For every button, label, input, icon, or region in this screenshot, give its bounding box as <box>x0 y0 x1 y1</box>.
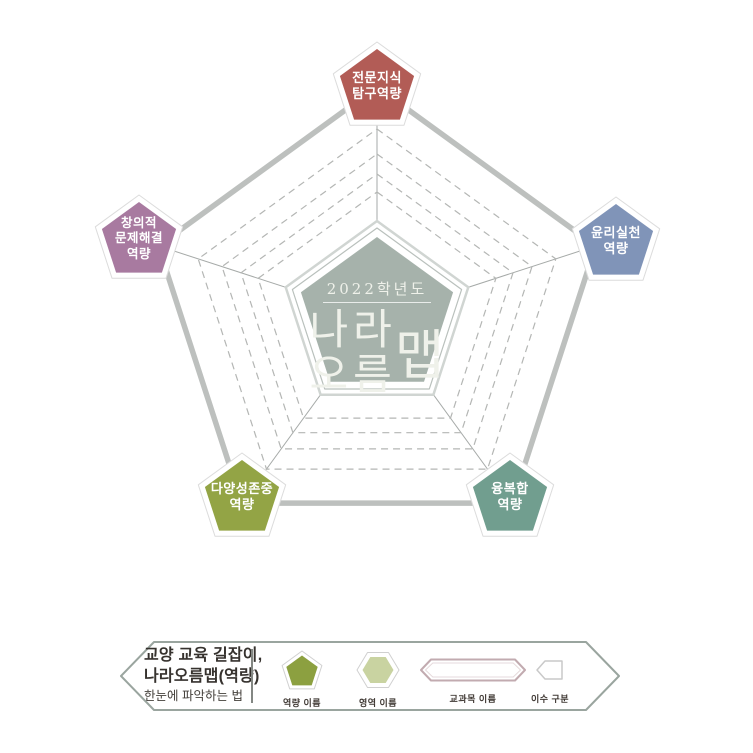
legend-item-label: 역량 이름 <box>283 696 321 709</box>
legend-item-competency: 역량 이름 <box>270 650 334 709</box>
legend-title-line3: 한눈에 파악하는 법 <box>144 687 262 705</box>
classification-tag-icon <box>535 659 565 681</box>
competency-label-line: 문제해결 <box>115 231 163 247</box>
hexagon-icon <box>355 650 401 690</box>
map-name-line1: 나라 <box>310 307 397 352</box>
competency-badge-top: 전문지식 탐구역량 <box>329 38 425 138</box>
competency-badge-right: 윤리실천 역량 <box>568 193 664 293</box>
legend-item-label: 교과목 이름 <box>450 692 497 705</box>
competency-badge-bottom-right: 융복합 역량 <box>462 449 558 549</box>
map-name-stacked: 나라 오름 <box>310 307 397 397</box>
legend-box: 교양 교육 길잡이, 나라오름맵(역량) 한눈에 파악하는 법 역량 이름 영역… <box>118 638 622 714</box>
legend-title-line2: 나라오름맵(역량) <box>144 666 262 687</box>
competency-label-line: 탐구역량 <box>352 86 402 102</box>
competency-label: 창의적 문제해결 역량 <box>91 189 187 289</box>
competency-label: 전문지식 탐구역량 <box>329 36 425 136</box>
legend-item-classification: 이수 구분 <box>518 650 582 705</box>
map-title: 2022학년도 나라 오름 맵 <box>297 278 457 397</box>
legend-item-label: 영역 이름 <box>359 696 397 709</box>
competency-label: 윤리실천 역량 <box>568 191 664 291</box>
legend-item-course: 교과목 이름 <box>413 650 533 705</box>
map-name-suffix: 맵 <box>395 329 445 383</box>
map-name: 나라 오름 맵 <box>297 307 457 397</box>
legend-divider <box>251 649 253 703</box>
competency-label-line: 창의적 <box>121 216 157 232</box>
course-pill-icon <box>418 657 528 683</box>
pentagon-icon <box>280 650 324 690</box>
competency-label-line: 역량 <box>127 247 151 263</box>
legend-item-label: 이수 구분 <box>531 692 569 705</box>
competency-label-line: 역량 <box>604 241 629 257</box>
legend-title-line1: 교양 교육 길잡이, <box>144 645 262 666</box>
competency-label: 다양성존중 역량 <box>194 447 290 547</box>
competency-label-line: 융복합 <box>491 481 528 497</box>
competency-badge-bottom-left: 다양성존중 역량 <box>194 449 290 549</box>
competency-label-line: 역량 <box>230 497 255 513</box>
competency-label-line: 다양성존중 <box>211 481 273 497</box>
competency-label-line: 전문지식 <box>352 70 402 86</box>
competency-badge-left: 창의적 문제해결 역량 <box>91 191 187 291</box>
legend-item-area: 영역 이름 <box>346 650 410 709</box>
legend-title: 교양 교육 길잡이, 나라오름맵(역량) 한눈에 파악하는 법 <box>144 645 262 705</box>
icon-outline <box>537 661 562 679</box>
competency-label: 융복합 역량 <box>462 447 558 547</box>
map-name-line2: 오름 <box>310 352 397 397</box>
competency-label-line: 역량 <box>498 497 523 513</box>
academic-year-label: 2022학년도 <box>323 278 432 303</box>
competency-label-line: 윤리실천 <box>591 225 641 241</box>
nara-oreum-map: 전문지식 탐구역량 윤리실천 역량 융복합 역량 다양성존중 <box>0 0 753 753</box>
